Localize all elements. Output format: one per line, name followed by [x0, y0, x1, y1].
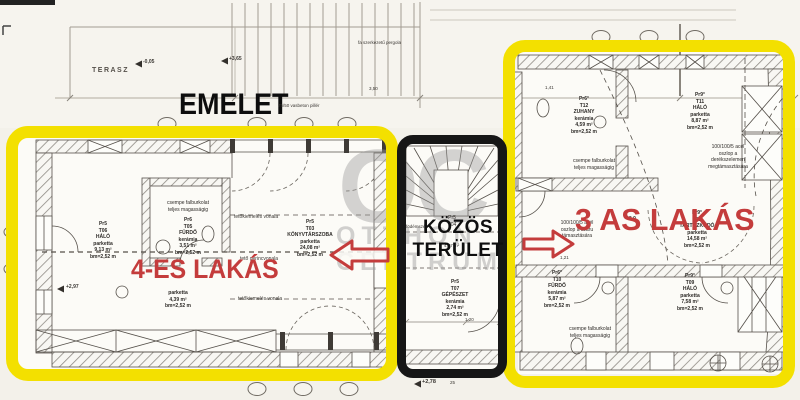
level-278: +2,78 [422, 379, 436, 385]
dim-141: 1,41 [545, 85, 554, 90]
red-arrow-right-icon [521, 227, 577, 263]
room-halo-t11: Pr9° T11 HÁLÓ parketta 8,87 m² bm=2,52 m [676, 92, 724, 131]
room-gepeszet-t07: Pr5 T07 GÉPÉSZET kerámia 2,74 m² bm=2,52… [432, 279, 478, 318]
level-mark-a: -0,05 [143, 59, 154, 65]
level-mark-b: +3,65 [229, 56, 242, 62]
csempe-note-a3-1: csempe falburkolat teljes magasságig [566, 158, 622, 171]
pillar-note: 75/50 vasbeton pillér [278, 103, 320, 108]
apartment4-title: 4-ES LAKÁS [131, 254, 279, 285]
room-furdo-t05: Pr6 T05 FÜRDŐ kerámia 3,51 m² bm=2,52 m [168, 217, 208, 256]
room-furdo-t10: Pr6° T10 FÜRDŐ kerámia 5,87 m² bm=2,52 m [535, 270, 579, 309]
terasz-label: TERASZ [92, 67, 129, 74]
csempe-note-a3-2: csempe falburkolat teljes magasságig [562, 326, 618, 339]
room-halo-t09: Pr9° T09 HÁLÓ parketta 7,58 m² bm=2,52 m [666, 273, 714, 312]
tetokiemeles-note-1: tetőkiemelés vonala [234, 214, 278, 220]
dim-120: 1,20 [465, 317, 474, 322]
dim-350: 3,50 [369, 86, 378, 91]
emelet-title: EMELET [179, 88, 289, 122]
page-artifacts [0, 0, 55, 35]
room-eloter: parketta 4,39 m² bm=2,52 m [158, 290, 198, 310]
csempe-note-a4: csempe falburkolat teljes magasságig [160, 200, 216, 213]
room-halo-t06: Pr5 T06 HÁLÓ parketta 9,13 m² bm=2,52 m [80, 221, 126, 260]
tetokiemeles-note-2: tetőkiemelés vonala [238, 296, 282, 302]
apartment3-title: 3 AS LAKÁS [575, 202, 754, 238]
room-zuhany-t12: Pr6° T12 ZUHANY kerámia 4,59 m² bm=2,52 … [562, 96, 606, 135]
dim-25: 25 [450, 380, 455, 385]
floorplan-screenshot: OC OTTHON CENTRUM TERASZ EMELET 75/50 va… [0, 0, 800, 400]
common-area-title: KÖZÖS TERÜLET [406, 216, 510, 262]
level-297: +2,97 [66, 284, 79, 290]
red-arrow-left-icon [328, 236, 392, 274]
pergola-note: fa szerkezetű pergola [358, 40, 401, 45]
steel-column-note-1: 100/100/5 acél oszlop a derékszelemen me… [700, 144, 756, 170]
